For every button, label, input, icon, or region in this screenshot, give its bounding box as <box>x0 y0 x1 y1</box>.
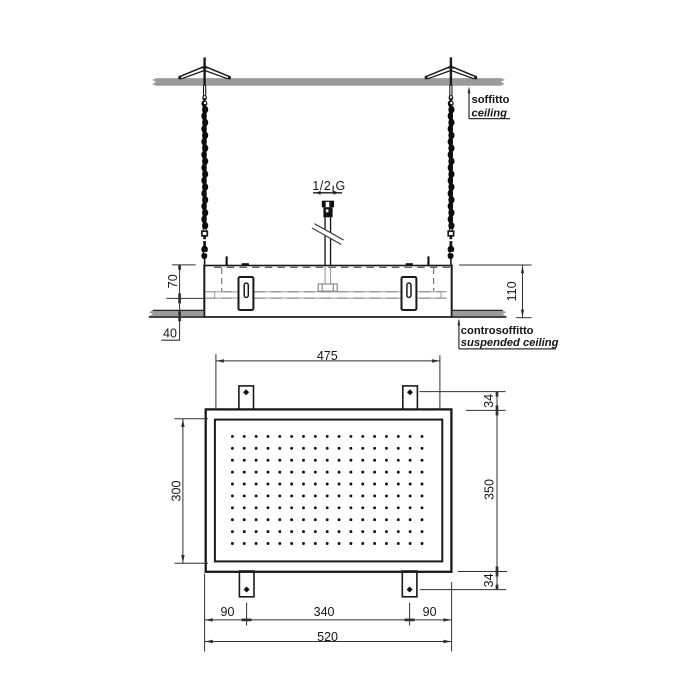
svg-text:475: 475 <box>317 349 338 363</box>
svg-text:90: 90 <box>423 605 437 619</box>
svg-text:340: 340 <box>314 605 335 619</box>
svg-text:controsoffitto: controsoffitto <box>461 325 534 337</box>
svg-text:40: 40 <box>163 327 177 341</box>
svg-text:34: 34 <box>482 394 496 408</box>
svg-text:ceiling: ceiling <box>472 108 508 120</box>
svg-text:90: 90 <box>221 605 235 619</box>
svg-text:350: 350 <box>483 479 497 500</box>
svg-text:suspended ceiling: suspended ceiling <box>461 337 559 349</box>
svg-text:70: 70 <box>166 274 180 288</box>
svg-text:soffitto: soffitto <box>472 94 510 106</box>
svg-text:300: 300 <box>169 481 183 502</box>
svg-text:520: 520 <box>317 630 338 644</box>
svg-text:34: 34 <box>482 573 496 587</box>
svg-text:1/2 G: 1/2 G <box>312 179 345 193</box>
svg-text:110: 110 <box>505 281 519 301</box>
